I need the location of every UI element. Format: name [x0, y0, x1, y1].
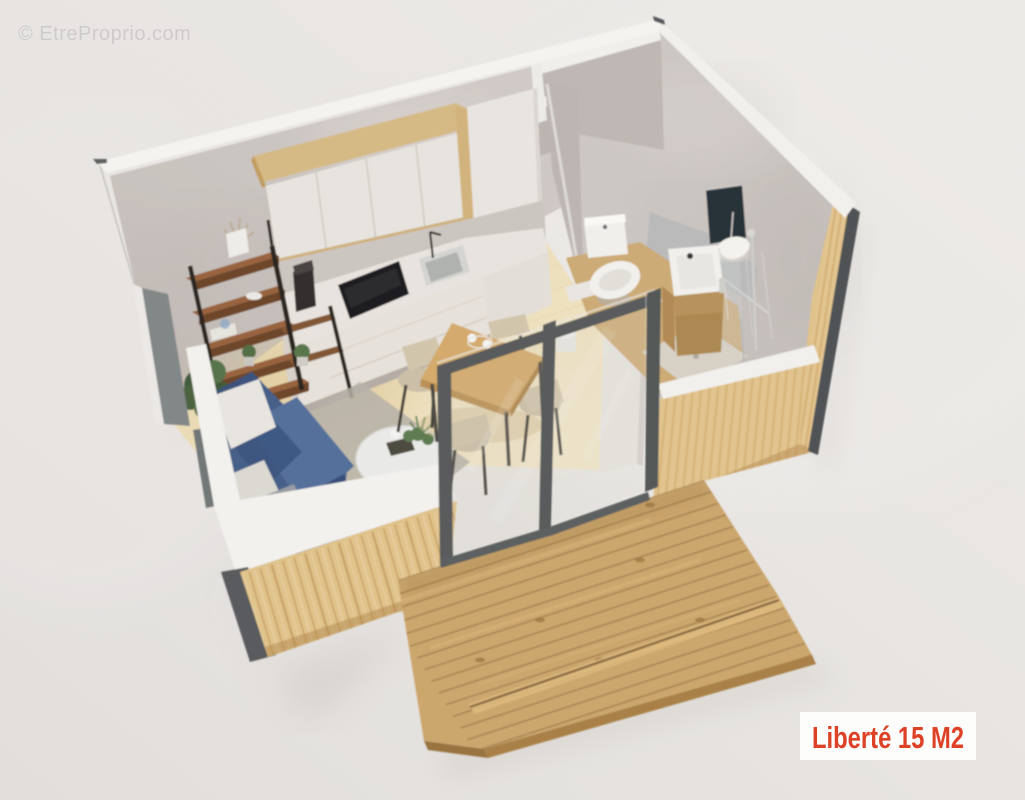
- svg-text:© EtreProprio.com: © EtreProprio.com: [18, 23, 191, 45]
- svg-text:Liberté 15 M2: Liberté 15 M2: [812, 720, 964, 755]
